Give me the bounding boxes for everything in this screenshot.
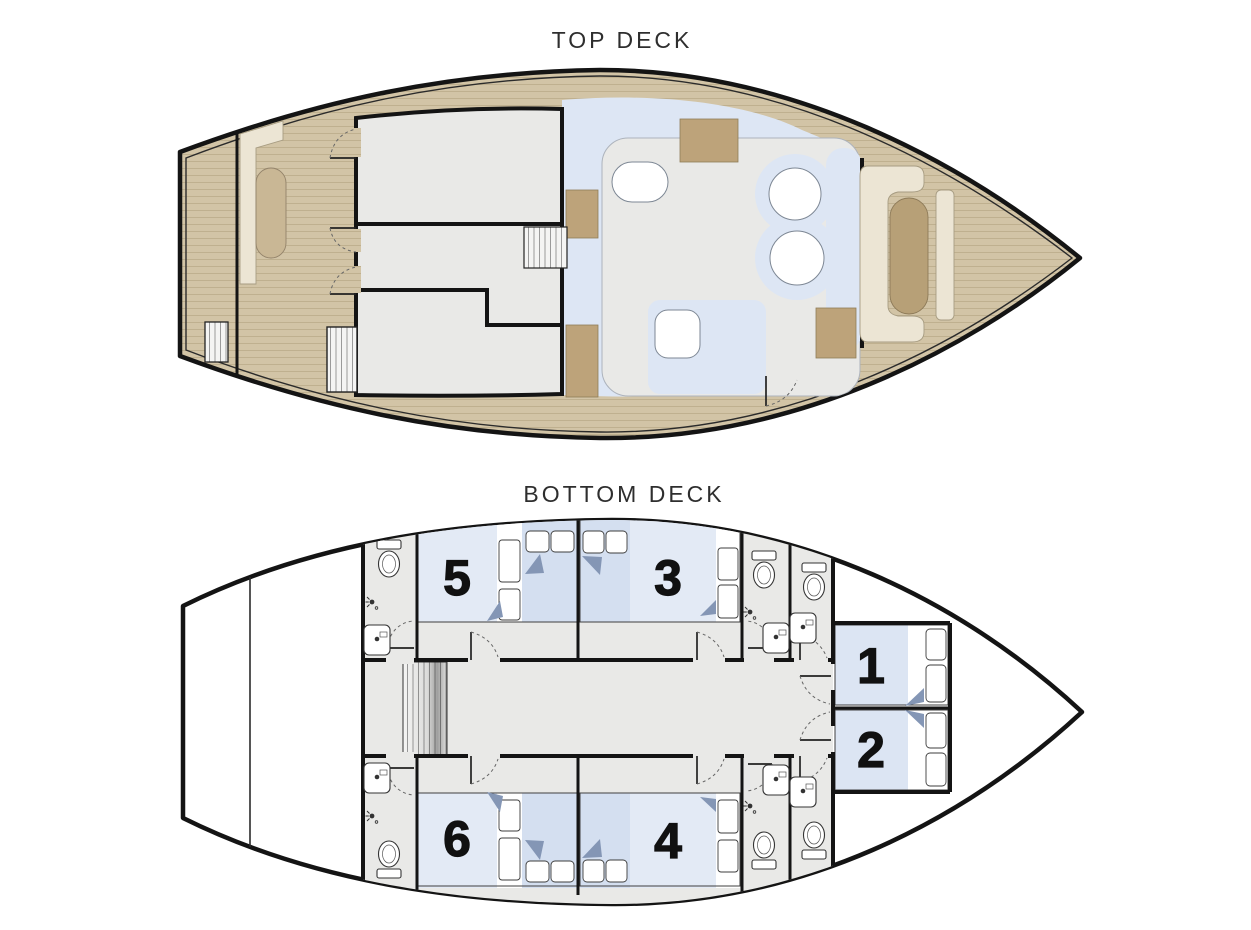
salon-cabinet-right [816, 308, 856, 358]
toilet-icon [377, 540, 401, 577]
cabin-6: 6 [418, 792, 577, 888]
deck-stairs-icon [327, 327, 357, 392]
companionway-stairs-icon [524, 227, 567, 268]
salon-table-oval [612, 162, 668, 202]
cabin-4: 4 [580, 793, 740, 888]
sink-icon [364, 625, 390, 655]
sink-icon [763, 765, 789, 795]
toilet-icon [377, 841, 401, 878]
sink-icon [790, 613, 816, 643]
dinette-table-upper [769, 168, 821, 220]
bottom-deck: BOTTOM DECK 5 [183, 481, 1082, 906]
cabin-6-number: 6 [443, 811, 471, 867]
corridor-stairs-icon [403, 662, 447, 756]
cabin-5-number: 5 [443, 550, 471, 606]
bow-table [936, 190, 954, 320]
deck-plan-svg: TOP DECK [0, 0, 1251, 930]
salon-cabinet-top [680, 119, 738, 162]
salon-cabinet-left-upper [566, 190, 598, 238]
cabin-3-number: 3 [654, 550, 682, 606]
cabin-3: 3 [580, 514, 740, 622]
dinette-table-lower [770, 231, 824, 285]
sink-icon [364, 763, 390, 793]
sink-icon [763, 623, 789, 653]
toilet-icon [802, 822, 826, 859]
cabin-1: 1 [835, 625, 948, 706]
stern-stairs-icon [205, 322, 228, 362]
top-deck-title: TOP DECK [552, 27, 693, 53]
toilet-icon [752, 832, 776, 869]
bow-sunpad [890, 198, 928, 314]
salon-cabinet-left-lower [566, 325, 598, 397]
yacht-deck-plan: TOP DECK [0, 0, 1251, 930]
toilet-icon [802, 563, 826, 600]
bottom-deck-title: BOTTOM DECK [523, 481, 724, 507]
top-deck: TOP DECK [180, 27, 1080, 438]
cabin-1-number: 1 [857, 638, 885, 694]
cabin-2-number: 2 [857, 722, 885, 778]
sink-icon [790, 777, 816, 807]
cabin-5: 5 [418, 516, 577, 622]
cabin-2: 2 [835, 710, 948, 790]
cabin-4-number: 4 [654, 813, 682, 869]
stern-sunpad [256, 168, 286, 258]
toilet-icon [752, 551, 776, 588]
salon-table-square [655, 310, 700, 358]
